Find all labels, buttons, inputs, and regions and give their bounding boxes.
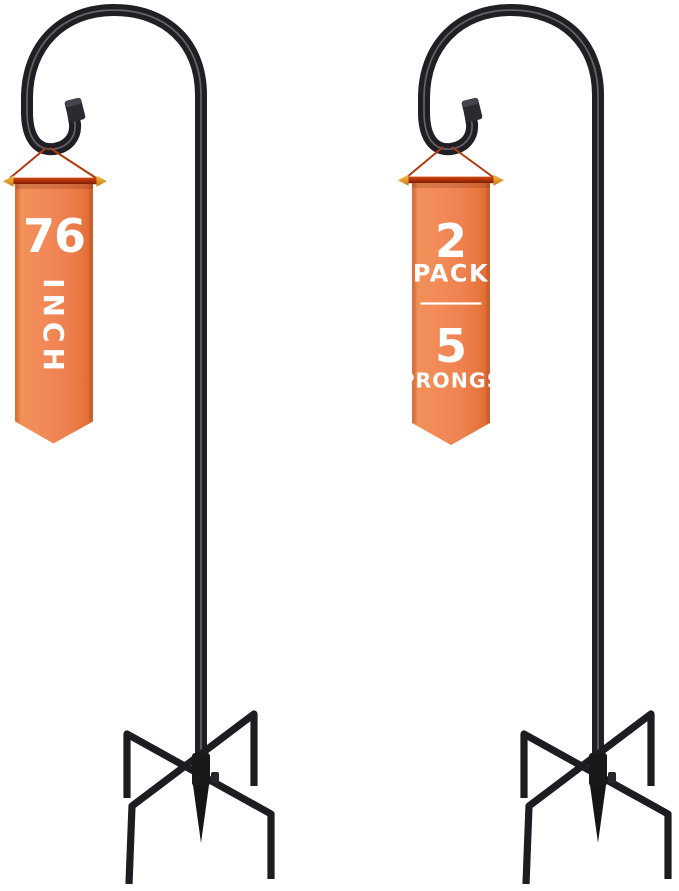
hook-tip-cap-right: [461, 97, 483, 122]
arrow-left-icon: [3, 176, 14, 187]
arrow-left-icon: [398, 175, 409, 186]
center-spike-right: [590, 785, 606, 843]
size-banner-top-shadow: [15, 184, 93, 189]
product-image: 76 INCH: [0, 0, 679, 891]
banner-prongs-value: 5: [435, 319, 467, 373]
center-spike-left: [193, 785, 209, 843]
arrow-right-icon: [97, 176, 108, 187]
arrow-right-icon: [494, 175, 505, 186]
size-banner-left-fold: [15, 184, 19, 422]
base-clamp-bolt-left: [211, 772, 219, 783]
hanger-bar-left: [9, 178, 101, 185]
base-leg-rear-right-front-left: [129, 714, 254, 884]
banner-size-value: 76: [23, 209, 85, 263]
hanger-bar-right: [405, 177, 498, 184]
base-collar-left: [192, 753, 210, 786]
hook-tip-cap-left: [64, 97, 86, 122]
size-banner: 76 INCH: [15, 184, 93, 444]
size-banner-right-fold: [89, 184, 93, 422]
base-collar-right: [589, 753, 607, 786]
shepherd-hook-unit-left: 76 INCH: [3, 10, 271, 884]
pack-banner-top-shadow: [412, 183, 490, 188]
base-clamp-bolt-right: [608, 772, 616, 783]
banner-pack-label: PACK: [413, 260, 489, 288]
shepherd-hook-unit-right: 2 PACK 5 PRONGS: [398, 10, 668, 884]
product-image-canvas: 76 INCH: [0, 0, 679, 891]
pack-prongs-banner: 2 PACK 5 PRONGS: [400, 183, 503, 445]
base-leg-rear-right-front-left: [526, 714, 651, 884]
banner-prongs-label: PRONGS: [400, 369, 503, 393]
banner-size-unit: INCH: [37, 278, 70, 376]
